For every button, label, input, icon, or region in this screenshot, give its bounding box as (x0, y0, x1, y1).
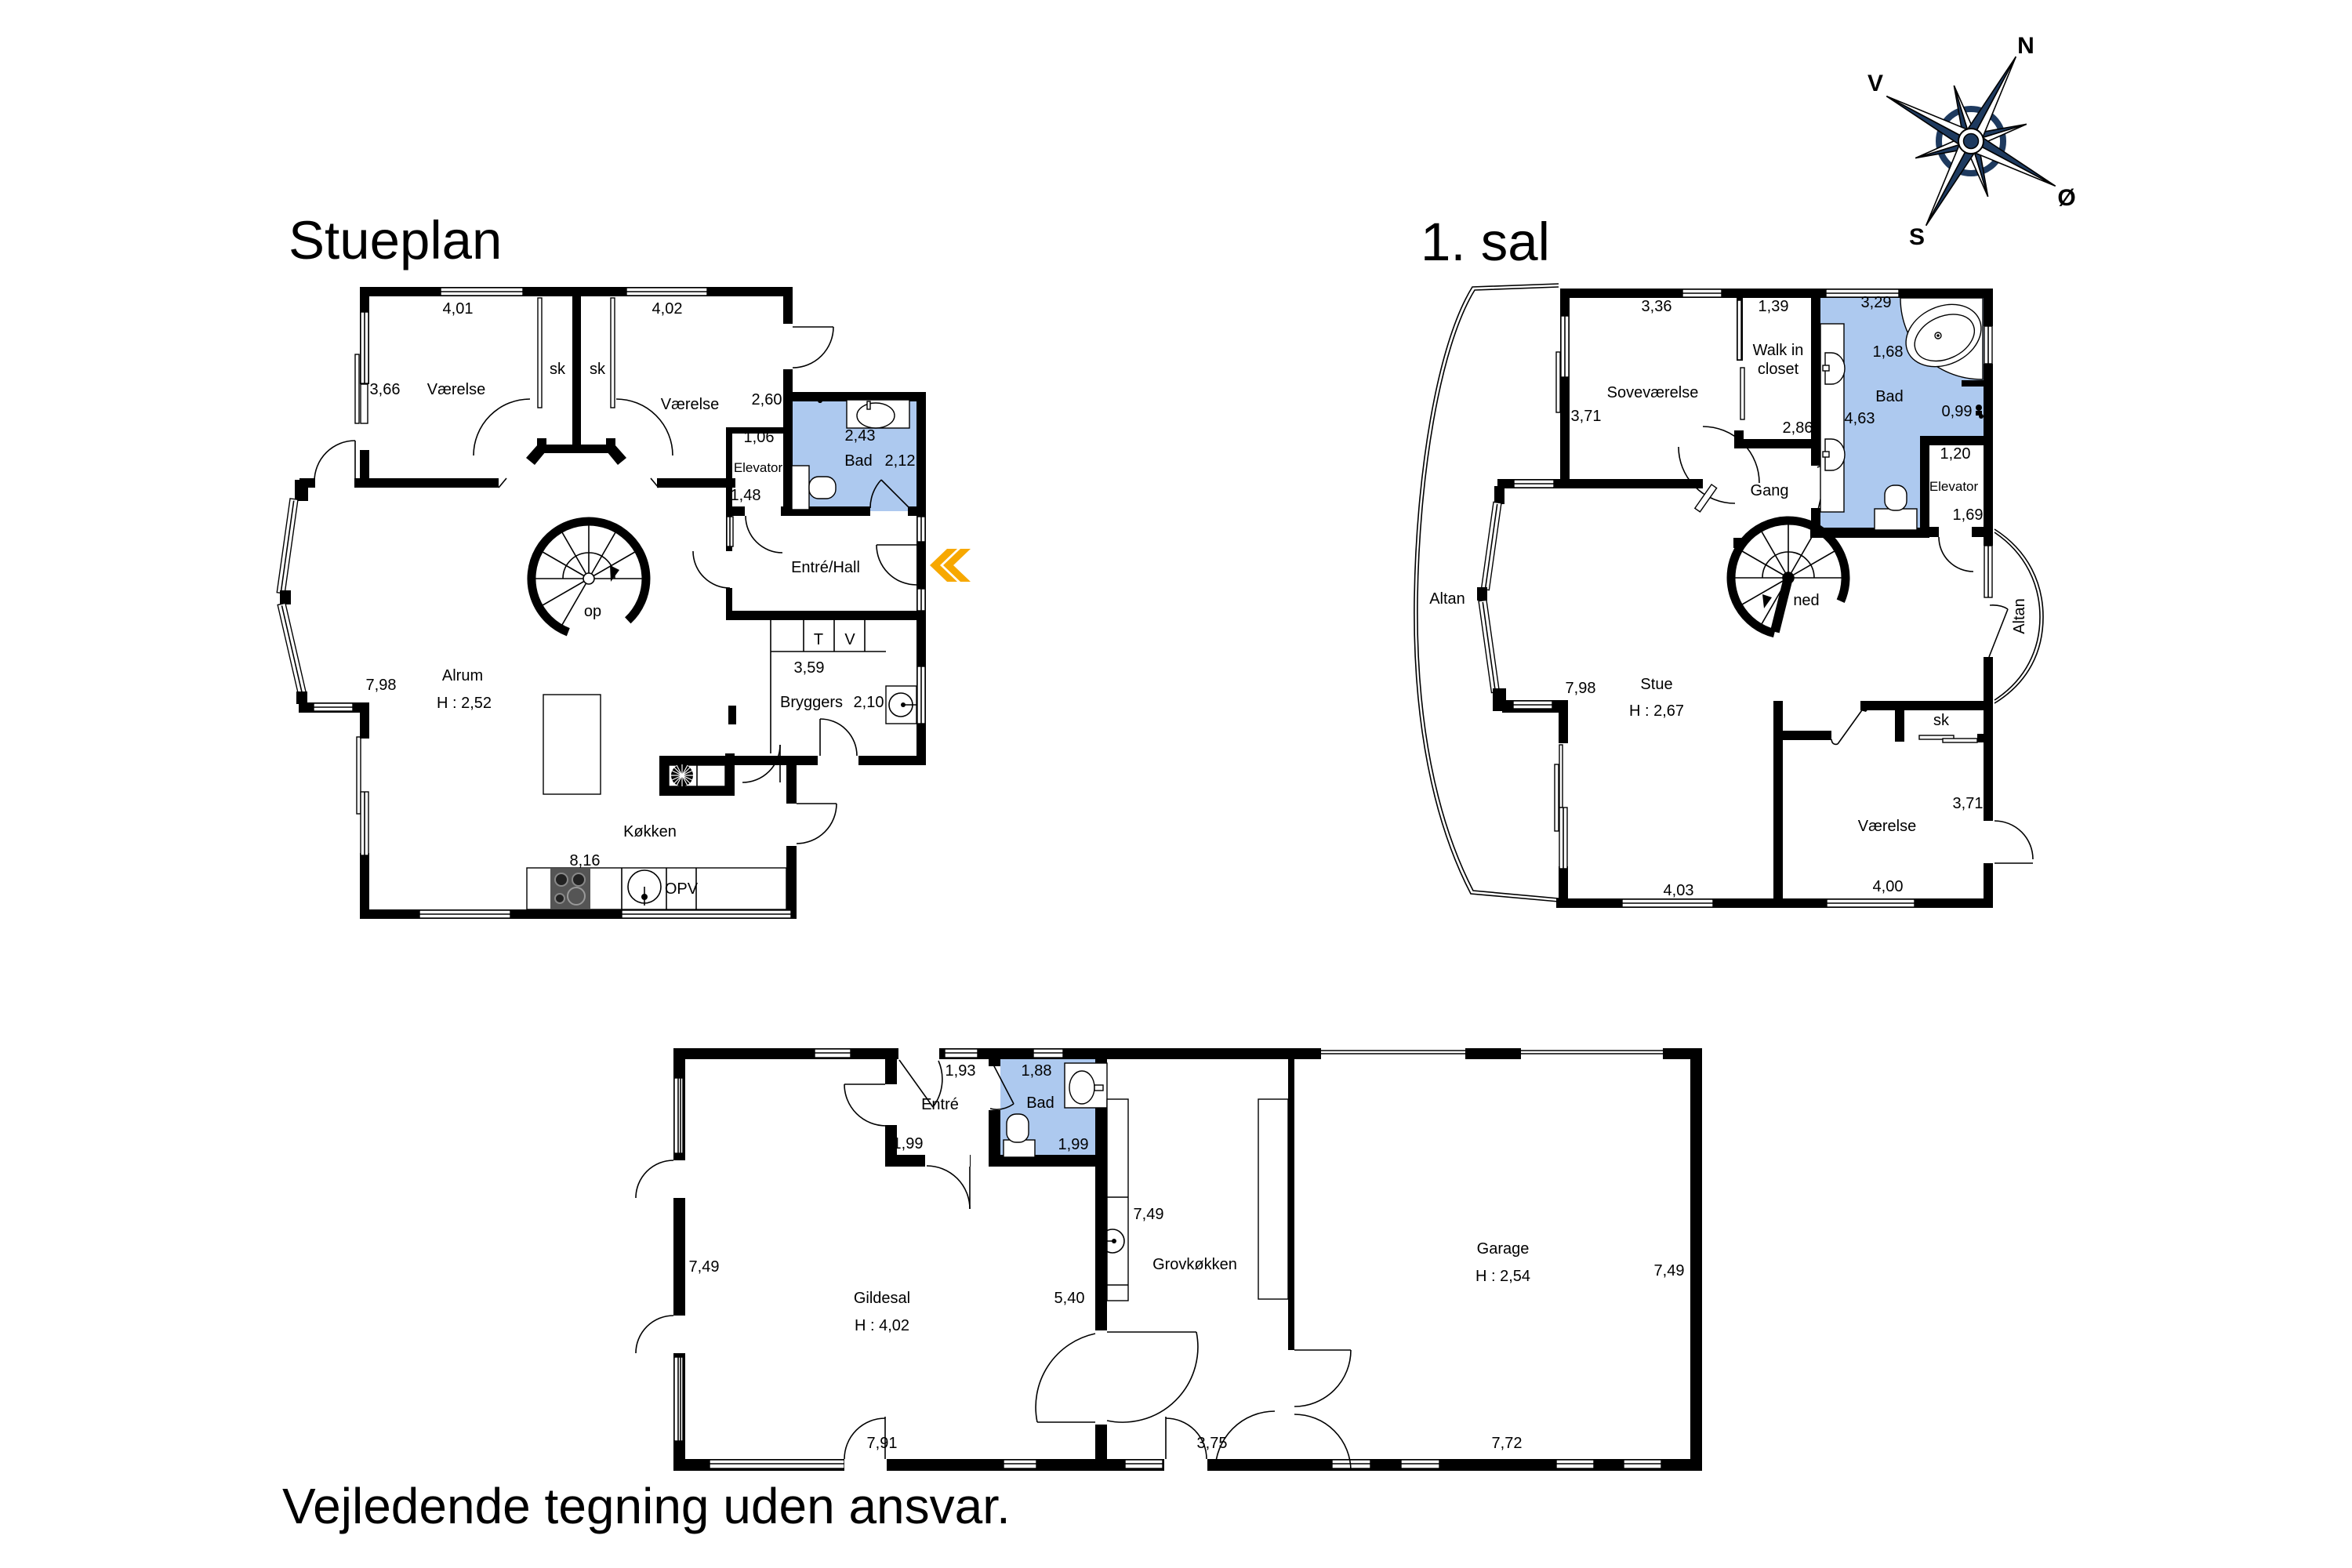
svg-text:4,02: 4,02 (652, 300, 683, 318)
svg-text:Elevator: Elevator (734, 460, 783, 475)
svg-text:7,98: 7,98 (366, 677, 397, 694)
svg-text:Vejledende tegning uden ansvar: Vejledende tegning uden ansvar. (282, 1478, 1011, 1534)
svg-text:7,49: 7,49 (1654, 1262, 1685, 1279)
svg-text:H : 4,02: H : 4,02 (855, 1317, 909, 1334)
svg-text:Bryggers: Bryggers (780, 694, 843, 711)
svg-text:3,71: 3,71 (1953, 795, 1984, 812)
svg-text:1,20: 1,20 (1940, 445, 1971, 463)
svg-text:sk: sk (590, 361, 606, 378)
svg-text:3,75: 3,75 (1197, 1435, 1228, 1452)
svg-text:OPV: OPV (665, 880, 699, 898)
svg-text:V: V (1867, 71, 1883, 96)
svg-text:1,99: 1,99 (1058, 1136, 1089, 1153)
svg-text:H : 2,67: H : 2,67 (1629, 702, 1684, 720)
svg-text:Værelse: Værelse (661, 396, 719, 413)
svg-text:Køkken: Køkken (623, 823, 677, 840)
svg-text:Entré: Entré (921, 1096, 959, 1113)
svg-text:Bad: Bad (1026, 1094, 1054, 1112)
svg-text:Grovkøkken: Grovkøkken (1152, 1256, 1237, 1273)
svg-text:Stue: Stue (1640, 676, 1672, 693)
svg-text:3,36: 3,36 (1642, 298, 1672, 315)
svg-text:Entré/Hall: Entré/Hall (791, 559, 860, 576)
svg-text:1,68: 1,68 (1873, 343, 1904, 361)
svg-text:Soveværelse: Soveværelse (1607, 384, 1699, 401)
svg-text:1,06: 1,06 (744, 429, 775, 446)
svg-text:2,86: 2,86 (1783, 419, 1813, 437)
svg-text:7,49: 7,49 (689, 1258, 720, 1276)
svg-text:1,69: 1,69 (1953, 506, 1984, 524)
svg-text:N: N (2017, 33, 2034, 59)
svg-text:8,16: 8,16 (570, 852, 601, 869)
svg-text:sk: sk (1933, 712, 1950, 729)
svg-text:V: V (844, 631, 855, 648)
svg-text:1. sal: 1. sal (1421, 212, 1550, 272)
svg-text:4,00: 4,00 (1873, 878, 1904, 895)
svg-text:4,03: 4,03 (1664, 882, 1694, 899)
svg-text:Bad: Bad (1875, 388, 1904, 405)
svg-text:closet: closet (1758, 361, 1799, 378)
svg-text:Elevator: Elevator (1929, 479, 1979, 494)
svg-text:Værelse: Værelse (1858, 818, 1916, 835)
svg-text:H : 2,54: H : 2,54 (1475, 1268, 1530, 1285)
svg-text:7,91: 7,91 (867, 1435, 898, 1452)
svg-text:1,39: 1,39 (1759, 298, 1789, 315)
svg-text:Gildesal: Gildesal (854, 1290, 910, 1307)
svg-text:Walk in: Walk in (1753, 342, 1804, 359)
svg-text:Alrum: Alrum (442, 667, 483, 684)
svg-text:2,60: 2,60 (752, 391, 782, 408)
svg-text:Bad: Bad (844, 452, 873, 470)
svg-text:2,43: 2,43 (845, 427, 876, 445)
svg-text:H : 2,52: H : 2,52 (437, 695, 492, 712)
svg-text:1,88: 1,88 (1022, 1062, 1052, 1080)
svg-text:1,48: 1,48 (731, 487, 761, 504)
svg-text:2,10: 2,10 (854, 694, 884, 711)
svg-text:S: S (1909, 224, 1925, 250)
svg-text:5,40: 5,40 (1054, 1290, 1085, 1307)
svg-text:op: op (584, 603, 601, 620)
svg-text:Stueplan: Stueplan (289, 210, 502, 270)
svg-text:3,66: 3,66 (370, 381, 401, 398)
svg-text:ned: ned (1793, 592, 1819, 609)
svg-text:1,93: 1,93 (946, 1062, 976, 1080)
svg-text:3,71: 3,71 (1571, 408, 1602, 425)
svg-text:3,59: 3,59 (794, 659, 825, 677)
svg-text:Gang: Gang (1751, 482, 1789, 499)
svg-text:0,99: 0,99 (1942, 403, 1973, 420)
svg-text:Ø: Ø (2057, 185, 2075, 211)
svg-text:T: T (814, 631, 823, 648)
svg-text:sk: sk (550, 361, 566, 378)
svg-text:2,12: 2,12 (885, 452, 916, 470)
svg-text:7,49: 7,49 (1134, 1206, 1164, 1223)
svg-text:Altan: Altan (1429, 590, 1465, 608)
svg-text:1,99: 1,99 (893, 1135, 924, 1152)
svg-text:Altan: Altan (2011, 598, 2028, 634)
svg-text:3,29: 3,29 (1861, 294, 1892, 311)
svg-text:4,63: 4,63 (1845, 410, 1875, 427)
svg-text:Garage: Garage (1477, 1240, 1530, 1258)
svg-text:4,01: 4,01 (443, 300, 474, 318)
svg-text:7,98: 7,98 (1566, 680, 1596, 697)
svg-text:7,72: 7,72 (1492, 1435, 1523, 1452)
svg-text:Værelse: Værelse (427, 381, 485, 398)
